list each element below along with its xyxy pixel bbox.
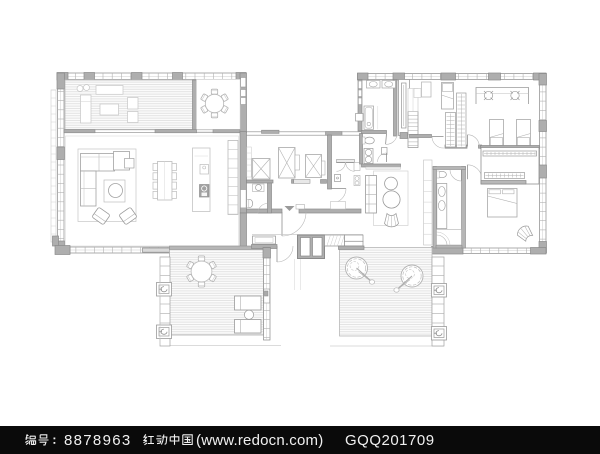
svg-text:GQQ201709: GQQ201709 [345,432,435,449]
svg-text:(www.redocn.com): (www.redocn.com) [196,432,323,449]
svg-text:8878963: 8878963 [64,432,132,449]
